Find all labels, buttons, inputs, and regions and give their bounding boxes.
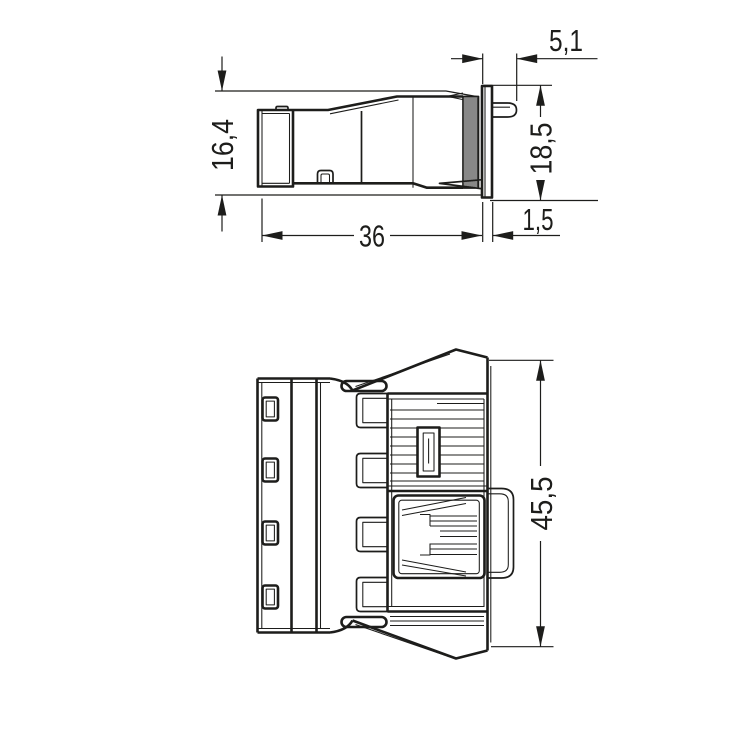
dim-flange-height: 18,5: [524, 85, 559, 200]
dim-pin-protrusion: 5,1: [451, 23, 598, 63]
dim-label-flange-height: 18,5: [524, 123, 559, 175]
connector-housing-outline: [258, 86, 492, 198]
front-view-part: [258, 350, 514, 659]
dim-label-flange-thickness: 1,5: [523, 202, 554, 237]
arrow-left-icon: [517, 54, 538, 63]
arrow-up-icon: [536, 360, 545, 381]
arrow-right-icon: [462, 54, 483, 63]
dim-label-pin-protrusion: 5,1: [549, 23, 583, 58]
latch-chamber-detail: [402, 498, 477, 577]
dim-body-length: 36: [262, 219, 482, 254]
dim-label-body-length: 36: [359, 219, 385, 254]
arrow-left-icon: [262, 231, 283, 240]
pole-tabs: [357, 394, 388, 612]
arrow-down-icon: [218, 71, 227, 92]
front-view: 45,5: [258, 350, 560, 659]
pole-tabs-inner: [363, 398, 388, 606]
dim-label-overall-height: 45,5: [524, 477, 559, 531]
arrow-right-icon: [462, 231, 483, 240]
dim-label-body-height: 16,4: [205, 119, 240, 171]
dim-body-height: 16,4: [205, 57, 240, 232]
arrow-down-icon: [536, 180, 545, 201]
arrow-down-icon: [536, 626, 545, 647]
housing-details-fine: [262, 86, 510, 198]
arrow-left-icon: [493, 231, 514, 240]
side-view: 16,4 5,1 18,5 36 1,5: [205, 23, 598, 254]
snap-clip: [488, 489, 514, 579]
arrow-up-icon: [218, 195, 227, 216]
side-view-part: [258, 86, 517, 198]
coding-slots: [263, 398, 279, 609]
drawing-page: 16,4 5,1 18,5 36 1,5: [0, 0, 750, 750]
arrow-up-icon: [536, 85, 545, 106]
dim-flange-thickness: 1,5: [493, 202, 560, 240]
technical-drawing-canvas: 16,4 5,1 18,5 36 1,5: [0, 0, 750, 750]
dim-overall-height: 45,5: [489, 360, 559, 646]
